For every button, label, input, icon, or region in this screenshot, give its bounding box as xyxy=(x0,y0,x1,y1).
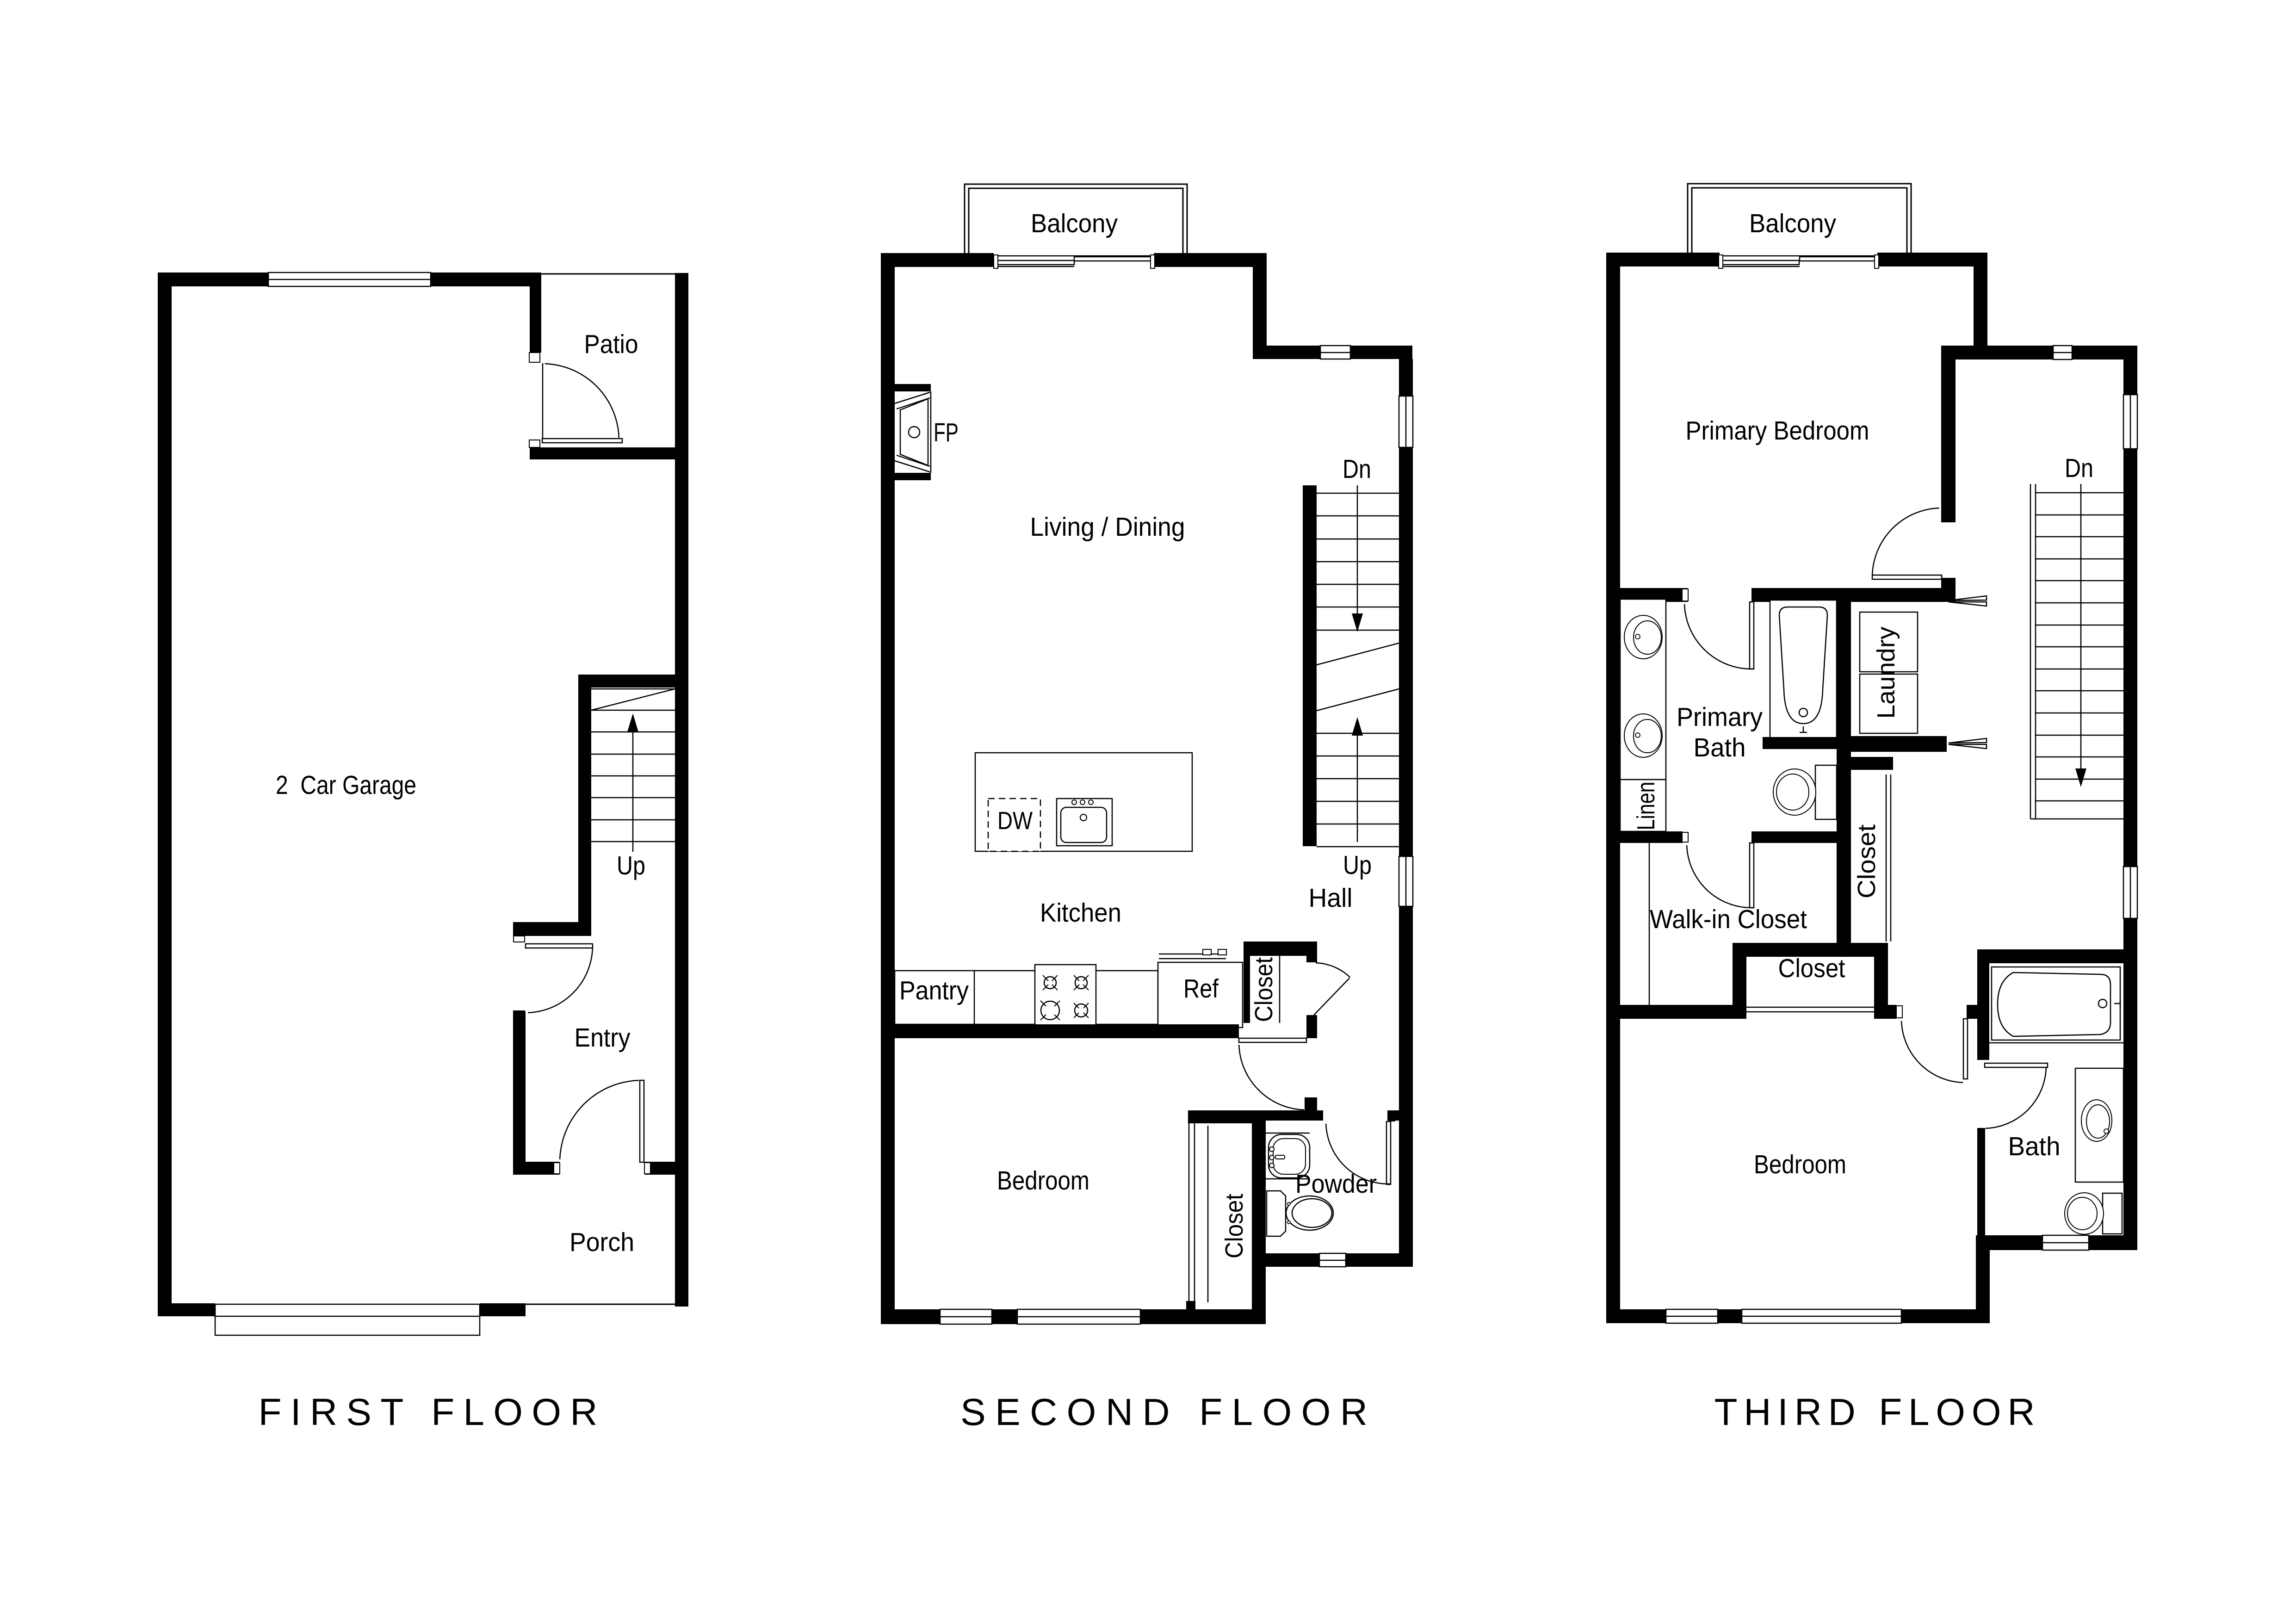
svg-text:Kitchen: Kitchen xyxy=(1040,898,1121,928)
svg-text:Ref: Ref xyxy=(1183,974,1219,1004)
svg-text:Bath: Bath xyxy=(1694,733,1746,762)
svg-text:DW: DW xyxy=(997,807,1033,835)
svg-text:Primary: Primary xyxy=(1677,702,1763,732)
svg-text:Up: Up xyxy=(617,851,645,880)
svg-text:Primary Bedroom: Primary Bedroom xyxy=(1686,416,1869,446)
svg-text:FP: FP xyxy=(934,418,959,447)
svg-text:Entry: Entry xyxy=(575,1023,631,1053)
svg-text:Pantry: Pantry xyxy=(899,976,969,1005)
svg-text:Bedroom: Bedroom xyxy=(1754,1150,1846,1179)
svg-text:Powder: Powder xyxy=(1295,1169,1377,1199)
svg-text:Hall: Hall xyxy=(1309,883,1353,913)
svg-text:Balcony: Balcony xyxy=(1749,209,1836,238)
svg-text:Closet: Closet xyxy=(1778,954,1845,983)
svg-text:Patio: Patio xyxy=(584,329,638,359)
svg-text:Laundry: Laundry xyxy=(1872,627,1900,719)
svg-text:Bath: Bath xyxy=(2008,1132,2061,1161)
svg-text:2 Car Garage: 2 Car Garage xyxy=(276,770,416,800)
svg-text:Dn: Dn xyxy=(1343,454,1371,484)
svg-text:Closet: Closet xyxy=(1250,957,1278,1022)
svg-text:Dn: Dn xyxy=(2065,453,2093,483)
svg-text:Porch: Porch xyxy=(569,1227,634,1257)
svg-text:Walk-in Closet: Walk-in Closet xyxy=(1650,904,1807,934)
svg-text:Bedroom: Bedroom xyxy=(997,1166,1089,1196)
svg-text:Living / Dining: Living / Dining xyxy=(1030,512,1185,542)
svg-text:Closet: Closet xyxy=(1220,1194,1248,1258)
svg-text:Closet: Closet xyxy=(1853,824,1881,898)
svg-text:Linen: Linen xyxy=(1632,782,1660,830)
svg-text:Balcony: Balcony xyxy=(1031,209,1118,238)
svg-text:Up: Up xyxy=(1343,850,1372,880)
